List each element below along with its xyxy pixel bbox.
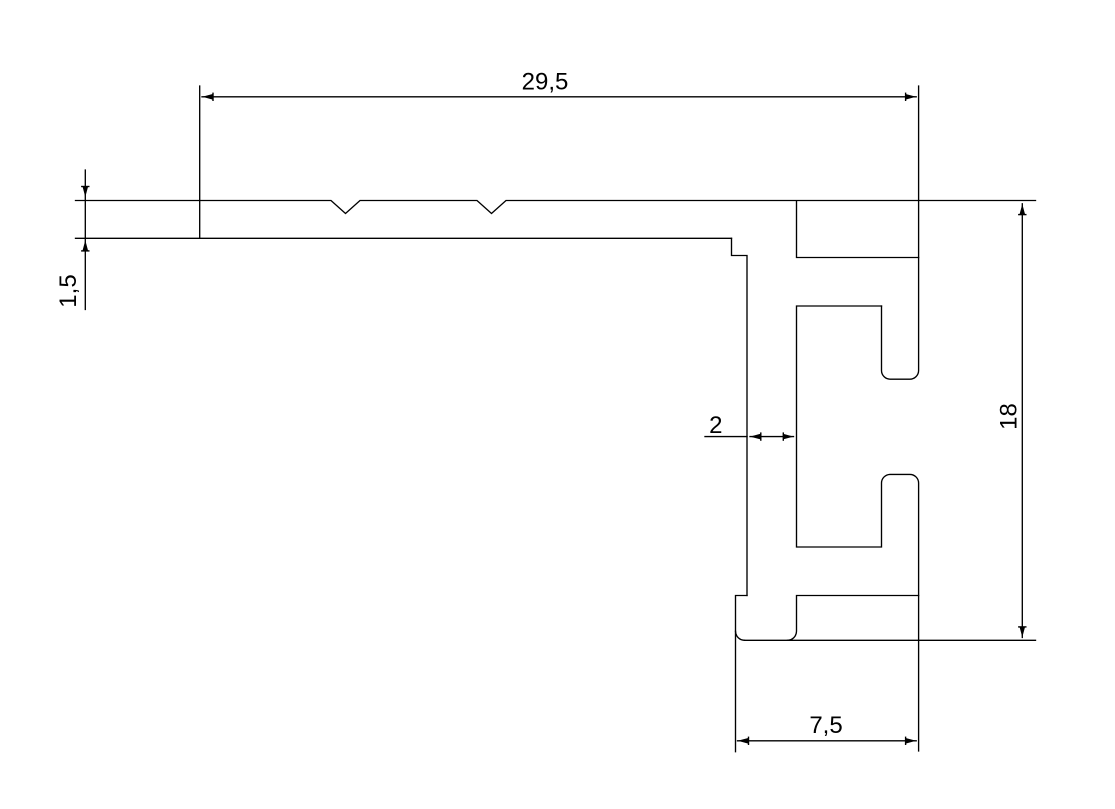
svg-text:29,5: 29,5 <box>522 68 569 95</box>
svg-text:1,5: 1,5 <box>55 274 82 307</box>
svg-text:7,5: 7,5 <box>809 712 842 739</box>
svg-text:18: 18 <box>996 403 1023 430</box>
svg-text:2: 2 <box>709 412 722 439</box>
